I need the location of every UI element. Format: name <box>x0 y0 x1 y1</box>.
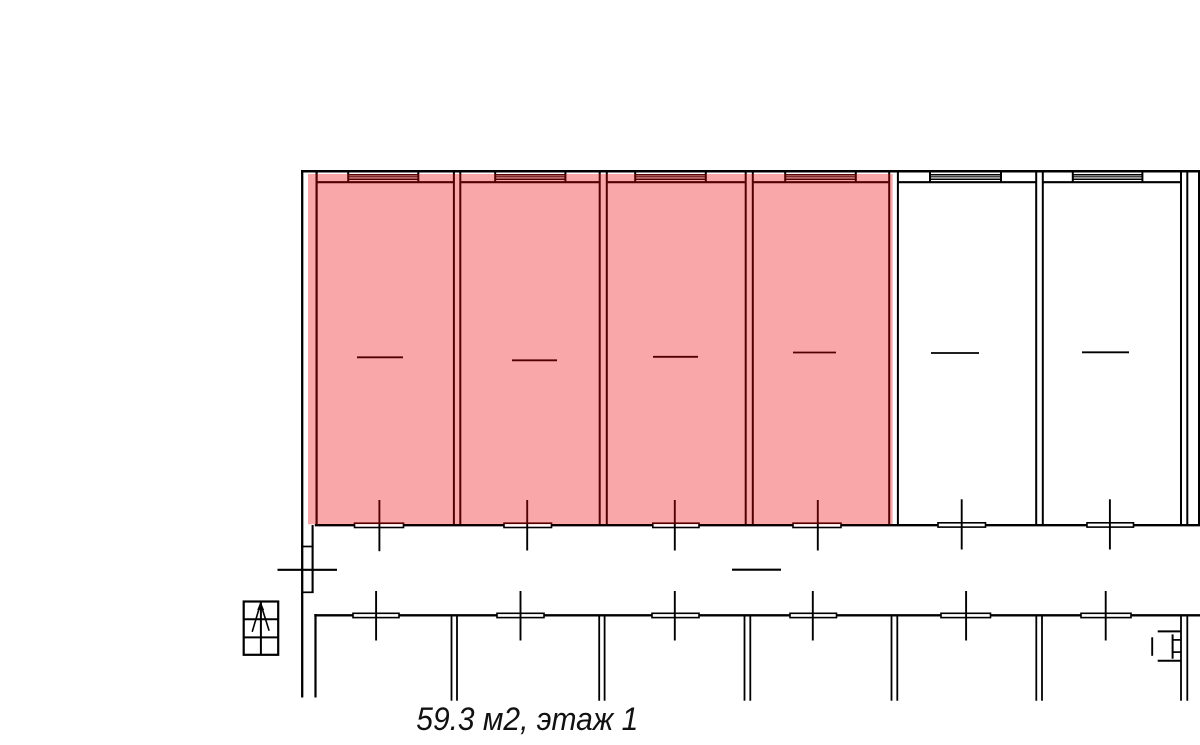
svg-text:59.3 м2, этаж 1: 59.3 м2, этаж 1 <box>416 701 638 737</box>
